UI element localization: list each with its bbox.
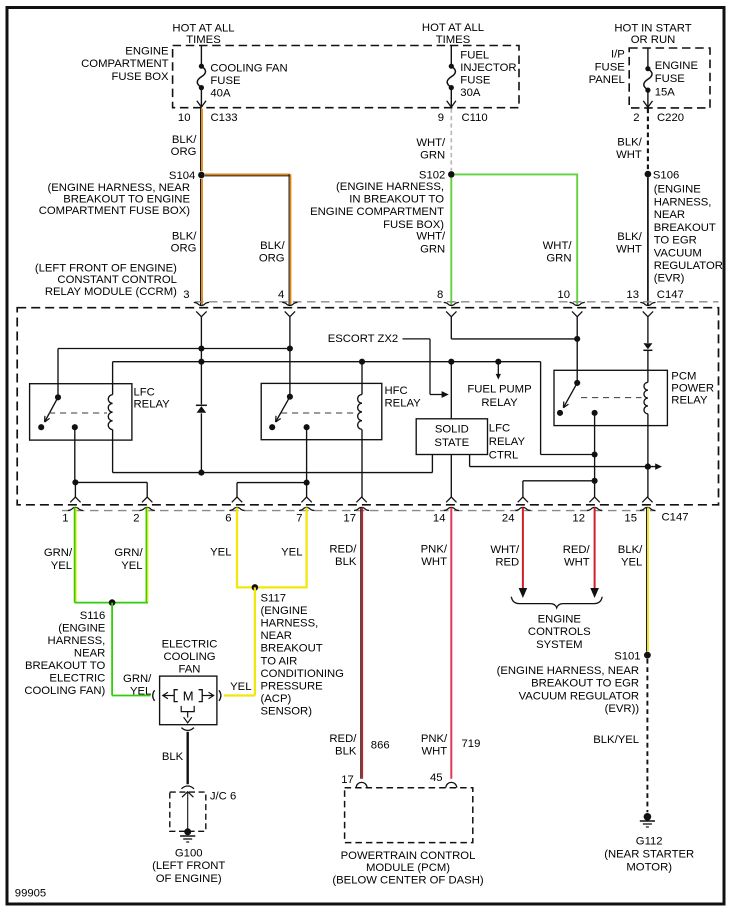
svg-text:WHT: WHT — [616, 244, 642, 256]
svg-text:COOLING: COOLING — [163, 651, 215, 663]
svg-text:OR RUN: OR RUN — [631, 34, 676, 46]
svg-text:(LEFT FRONT OF ENGINE): (LEFT FRONT OF ENGINE) — [35, 262, 177, 274]
svg-text:C133: C133 — [211, 112, 238, 124]
svg-text:719: 719 — [462, 738, 481, 750]
svg-text:CONDITIONING: CONDITIONING — [261, 668, 344, 680]
svg-text:RELAY: RELAY — [481, 397, 518, 409]
svg-text:(ENGINE: (ENGINE — [261, 605, 309, 617]
svg-text:LFC: LFC — [489, 423, 510, 435]
svg-text:MODULE (PCM): MODULE (PCM) — [366, 862, 450, 874]
svg-text:BLK/: BLK/ — [617, 136, 642, 148]
svg-text:9: 9 — [438, 112, 444, 124]
svg-text:LFC: LFC — [134, 387, 155, 399]
svg-text:FUSE BOX: FUSE BOX — [111, 71, 169, 83]
svg-text:RED/: RED/ — [329, 544, 357, 556]
svg-text:BLK/: BLK/ — [260, 240, 285, 252]
svg-text:VACUUM: VACUUM — [654, 247, 702, 259]
svg-text:YEL: YEL — [210, 547, 231, 559]
svg-text:NEAR: NEAR — [74, 648, 105, 660]
svg-text:FUSE: FUSE — [460, 75, 491, 87]
svg-text:WHT/: WHT/ — [416, 231, 446, 243]
svg-text:S116: S116 — [80, 610, 106, 622]
svg-text:10: 10 — [557, 289, 570, 301]
svg-text:(ACP): (ACP) — [261, 693, 292, 705]
svg-text:WHT/: WHT/ — [416, 137, 446, 149]
svg-text:866: 866 — [371, 740, 390, 752]
svg-text:M: M — [183, 689, 194, 704]
svg-text:RED: RED — [495, 557, 519, 569]
svg-text:ORG: ORG — [259, 253, 285, 265]
svg-text:BREAKOUT TO ENGINE: BREAKOUT TO ENGINE — [63, 194, 190, 206]
svg-text:(LEFT FRONT: (LEFT FRONT — [152, 860, 225, 872]
svg-text:OF ENGINE): OF ENGINE) — [156, 873, 222, 885]
svg-text:C147: C147 — [657, 289, 684, 301]
svg-text:BREAKOUT TO: BREAKOUT TO — [25, 660, 106, 672]
svg-text:FUSE: FUSE — [210, 75, 241, 87]
svg-text:2: 2 — [633, 112, 639, 124]
svg-text:PRESSURE: PRESSURE — [261, 681, 324, 693]
svg-text:FUEL PUMP: FUEL PUMP — [467, 383, 531, 395]
svg-text:WHT: WHT — [616, 149, 642, 161]
svg-text:HFC: HFC — [385, 385, 408, 397]
svg-text:GRN/: GRN/ — [123, 673, 152, 685]
svg-text:GRN: GRN — [420, 150, 445, 162]
svg-text:ESCORT ZX2: ESCORT ZX2 — [328, 333, 399, 345]
svg-text:WHT/: WHT/ — [543, 240, 573, 252]
svg-text:ENGINE: ENGINE — [655, 60, 699, 72]
svg-text:4: 4 — [278, 289, 284, 301]
svg-text:POWERTRAIN CONTROL: POWERTRAIN CONTROL — [341, 850, 476, 862]
svg-text:ORG: ORG — [171, 243, 197, 255]
svg-text:1: 1 — [62, 512, 68, 524]
svg-text:HARNESS,: HARNESS, — [48, 635, 106, 647]
svg-text:6: 6 — [225, 512, 231, 524]
svg-text:COOLING FAN): COOLING FAN) — [24, 685, 105, 697]
svg-text:TO EGR: TO EGR — [654, 234, 697, 246]
svg-text:WHT: WHT — [564, 557, 590, 569]
svg-text:BREAKOUT: BREAKOUT — [261, 643, 323, 655]
svg-text:I/P: I/P — [611, 49, 625, 61]
svg-text:FUSE: FUSE — [655, 73, 686, 85]
svg-text:15A: 15A — [655, 87, 676, 99]
svg-text:GRN: GRN — [546, 253, 571, 265]
svg-text:TO AIR: TO AIR — [261, 655, 298, 667]
svg-text:BREAKOUT TO EGR: BREAKOUT TO EGR — [531, 678, 639, 690]
svg-text:BLK: BLK — [335, 746, 357, 758]
svg-text:RED/: RED/ — [329, 733, 357, 745]
svg-text:BREAKOUT: BREAKOUT — [654, 222, 716, 234]
svg-text:VACUUM REGULATOR: VACUUM REGULATOR — [519, 690, 640, 702]
svg-text:30A: 30A — [460, 87, 481, 99]
svg-text:YEL: YEL — [121, 560, 142, 572]
svg-text:17: 17 — [341, 774, 354, 786]
svg-text:(ENGINE: (ENGINE — [58, 623, 106, 635]
svg-text:BLK/: BLK/ — [172, 231, 197, 243]
svg-text:PANEL: PANEL — [589, 74, 625, 86]
svg-text:J/C 6: J/C 6 — [210, 791, 236, 803]
svg-text:15: 15 — [624, 512, 637, 524]
svg-text:HARNESS,: HARNESS, — [261, 618, 319, 630]
svg-text:(ENGINE HARNESS, NEAR: (ENGINE HARNESS, NEAR — [48, 182, 191, 194]
svg-text:SOLID: SOLID — [435, 423, 469, 435]
svg-text:ORG: ORG — [171, 146, 197, 158]
svg-text:TIMES: TIMES — [436, 34, 471, 46]
svg-text:(ENGINE HARNESS,: (ENGINE HARNESS, — [336, 181, 444, 193]
svg-text:24: 24 — [502, 512, 515, 524]
svg-text:GRN/: GRN/ — [44, 547, 73, 559]
svg-text:CONSTANT CONTROL: CONSTANT CONTROL — [57, 274, 176, 286]
svg-text:NEAR: NEAR — [654, 209, 685, 221]
svg-text:7: 7 — [296, 512, 302, 524]
svg-text:(NEAR STARTER: (NEAR STARTER — [604, 848, 694, 860]
svg-text:POWER: POWER — [671, 383, 714, 395]
svg-text:C110: C110 — [462, 112, 488, 124]
svg-text:PNK/: PNK/ — [421, 733, 448, 745]
svg-text:YEL: YEL — [621, 557, 642, 569]
svg-text:RELAY: RELAY — [671, 395, 708, 407]
svg-text:CONTROLS: CONTROLS — [528, 626, 591, 638]
svg-text:GRN/: GRN/ — [114, 547, 143, 559]
svg-text:FUSE: FUSE — [595, 61, 626, 73]
svg-text:YEL: YEL — [130, 686, 151, 698]
svg-text:HOT IN START: HOT IN START — [614, 22, 691, 34]
svg-text:C220: C220 — [657, 112, 684, 124]
svg-text:IN BREAKOUT TO: IN BREAKOUT TO — [349, 194, 444, 206]
svg-text:S102: S102 — [419, 169, 445, 181]
svg-text:13: 13 — [626, 289, 639, 301]
svg-text:WHT: WHT — [421, 746, 447, 758]
svg-text:TIMES: TIMES — [186, 34, 221, 46]
svg-text:(EVR)): (EVR)) — [605, 703, 640, 715]
svg-text:10: 10 — [178, 112, 191, 124]
svg-text:G100: G100 — [175, 847, 203, 859]
svg-text:YEL: YEL — [51, 560, 72, 572]
svg-text:ELECTRIC: ELECTRIC — [162, 639, 218, 651]
svg-text:RELAY: RELAY — [385, 398, 422, 410]
svg-text:14: 14 — [433, 512, 446, 524]
svg-text:WHT: WHT — [421, 556, 447, 568]
svg-text:2: 2 — [133, 512, 139, 524]
svg-text:PCM: PCM — [671, 371, 696, 383]
svg-text:3: 3 — [183, 289, 189, 301]
svg-text:MOTOR): MOTOR) — [626, 861, 672, 873]
svg-text:8: 8 — [437, 289, 443, 301]
svg-text:FUSE BOX): FUSE BOX) — [383, 219, 444, 231]
svg-text:HARNESS,: HARNESS, — [654, 196, 712, 208]
svg-text:ENGINE COMPARTMENT: ENGINE COMPARTMENT — [310, 206, 444, 218]
svg-text:YEL: YEL — [281, 547, 302, 559]
svg-text:G112: G112 — [636, 836, 663, 848]
svg-text:HOT AT ALL: HOT AT ALL — [172, 22, 234, 34]
svg-text:FAN: FAN — [179, 663, 201, 675]
svg-text:STATE: STATE — [434, 437, 469, 449]
svg-text:(ENGINE HARNESS, NEAR: (ENGINE HARNESS, NEAR — [497, 665, 640, 677]
svg-text:S106: S106 — [653, 170, 679, 182]
svg-text:GRN: GRN — [420, 243, 445, 255]
svg-text:ELECTRIC: ELECTRIC — [49, 673, 105, 685]
svg-text:40A: 40A — [210, 87, 231, 99]
svg-text:(ENGINE: (ENGINE — [654, 183, 702, 195]
svg-text:BLK/: BLK/ — [172, 134, 197, 146]
svg-text:S117: S117 — [261, 592, 287, 604]
svg-text:COOLING FAN: COOLING FAN — [210, 62, 287, 74]
svg-text:WHT/: WHT/ — [490, 544, 520, 556]
svg-text:PNK/: PNK/ — [421, 544, 448, 556]
svg-text:12: 12 — [572, 512, 585, 524]
svg-text:COMPARTMENT FUSE BOX): COMPARTMENT FUSE BOX) — [39, 205, 191, 217]
svg-text:HOT AT ALL: HOT AT ALL — [422, 22, 484, 34]
svg-text:(EVR): (EVR) — [654, 273, 685, 285]
svg-text:SENSOR): SENSOR) — [261, 706, 313, 718]
svg-text:(BELOW CENTER OF DASH): (BELOW CENTER OF DASH) — [332, 875, 483, 887]
svg-text:ENGINE: ENGINE — [538, 613, 582, 625]
svg-text:17: 17 — [343, 512, 356, 524]
svg-text:NEAR: NEAR — [261, 630, 292, 642]
svg-text:BLK/YEL: BLK/YEL — [593, 734, 639, 746]
svg-text:C147: C147 — [662, 511, 689, 523]
svg-text:45: 45 — [430, 772, 443, 784]
svg-text:SYSTEM: SYSTEM — [536, 639, 582, 651]
svg-text:RELAY MODULE (CCRM): RELAY MODULE (CCRM) — [45, 286, 177, 298]
svg-text:BLK: BLK — [162, 751, 184, 763]
svg-text:YEL: YEL — [230, 681, 251, 693]
svg-text:RELAY: RELAY — [489, 436, 526, 448]
svg-text:CTRL: CTRL — [489, 450, 519, 462]
svg-text:99905: 99905 — [15, 887, 46, 899]
svg-text:REGULATOR: REGULATOR — [654, 260, 723, 272]
svg-text:BLK/: BLK/ — [617, 231, 642, 243]
svg-text:S104: S104 — [169, 170, 195, 182]
svg-text:RED/: RED/ — [563, 544, 591, 556]
svg-text:FUEL: FUEL — [460, 50, 489, 62]
svg-text:S101: S101 — [614, 650, 640, 662]
svg-text:BLK/: BLK/ — [618, 544, 643, 556]
svg-text:COMPARTMENT: COMPARTMENT — [81, 58, 169, 70]
svg-text:ENGINE: ENGINE — [125, 46, 169, 58]
svg-text:RELAY: RELAY — [134, 399, 171, 411]
svg-text:INJECTOR: INJECTOR — [460, 62, 516, 74]
svg-text:BLK: BLK — [335, 556, 357, 568]
